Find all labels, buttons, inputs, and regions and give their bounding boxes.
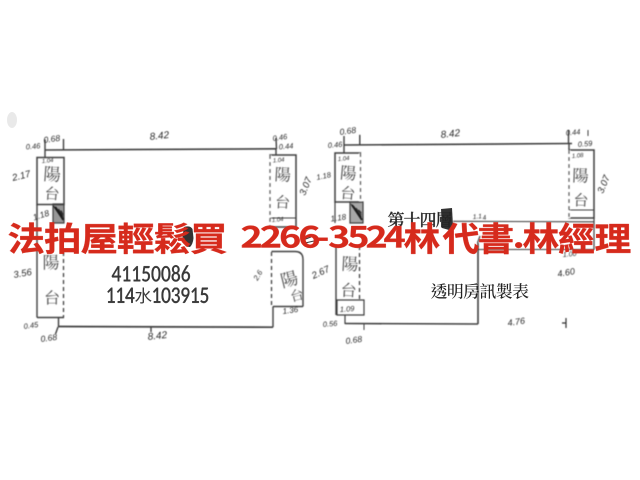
svg-text:0.44: 0.44 bbox=[565, 127, 580, 137]
svg-text:1.09: 1.09 bbox=[340, 304, 356, 314]
svg-text:1.04: 1.04 bbox=[272, 217, 285, 224]
svg-text:1.04: 1.04 bbox=[42, 158, 55, 165]
svg-text:0.59: 0.59 bbox=[577, 139, 593, 149]
svg-text:8.42: 8.42 bbox=[147, 330, 168, 343]
svg-text:1.04: 1.04 bbox=[338, 156, 351, 163]
svg-text:0.56: 0.56 bbox=[322, 319, 338, 329]
svg-text:0.46: 0.46 bbox=[327, 140, 343, 150]
svg-text:1.04: 1.04 bbox=[273, 157, 286, 164]
svg-text:0.46: 0.46 bbox=[25, 141, 41, 151]
svg-text:8.42: 8.42 bbox=[149, 130, 170, 143]
svg-text:8.42: 8.42 bbox=[440, 128, 461, 141]
svg-text:1.08: 1.08 bbox=[572, 153, 585, 160]
svg-text:0.44: 0.44 bbox=[278, 141, 293, 151]
